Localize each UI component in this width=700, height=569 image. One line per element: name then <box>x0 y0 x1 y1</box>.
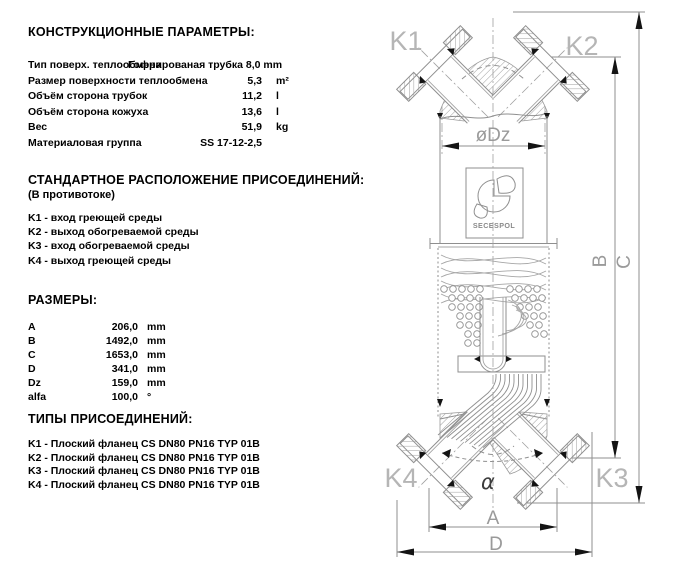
section-title-construction: КОНСТРУКЦИОННЫЕ ПАРАМЕТРЫ: <box>28 25 255 39</box>
dimension-label: B <box>28 335 36 347</box>
dimension-unit: ° <box>147 391 151 403</box>
connection-item: K1 - вход греющей среды <box>28 211 378 225</box>
connection-type-item: K4 - Плоский фланец CS DN80 PN16 TYP 01B <box>28 479 378 493</box>
spec-value: 5,3 <box>128 75 262 87</box>
spec-label: Вес <box>28 121 47 133</box>
dimension-value: 206,0 <box>58 321 138 333</box>
spec-row: Объём сторона кожуха 13,6 l <box>28 106 378 122</box>
label-b: B <box>590 255 611 268</box>
section-title-dimensions: РАЗМЕРЫ: <box>28 293 97 307</box>
dimension-unit: mm <box>147 377 166 389</box>
nameplate: SECESPOL <box>466 168 523 238</box>
shell <box>430 116 557 419</box>
connection-type-item: K2 - Плоский фланец CS DN80 PN16 TYP 01B <box>28 452 378 466</box>
dimension-label: alfa <box>28 391 46 403</box>
spec-unit: l <box>276 90 279 102</box>
connection-type-item: K1 - Плоский фланец CS DN80 PN16 TYP 01B <box>28 438 378 452</box>
spec-row: Вес 51,9 kg <box>28 121 378 137</box>
datasheet-page: SECESPOL K1 K2 K3 K4 øDz A D B C α КОНСТ… <box>0 0 700 569</box>
label-k2: K2 <box>565 31 598 61</box>
dimension-label: A <box>28 321 36 333</box>
dimension-unit: mm <box>147 363 166 375</box>
spec-value: 11,2 <box>128 90 262 102</box>
section-title-connections-layout: СТАНДАРТНОЕ РАСПОЛОЖЕНИЕ ПРИСОЕДИНЕНИЙ: <box>28 173 364 187</box>
spec-row: Размер поверхности теплообмена 5,3 m² <box>28 75 378 91</box>
label-k4: K4 <box>384 463 417 493</box>
dimension-label: Dz <box>28 377 41 389</box>
dimension-unit: mm <box>147 349 166 361</box>
spec-row: Объём сторона трубок 11,2 l <box>28 90 378 106</box>
spec-value: SS 17-12-2,5 <box>128 137 262 149</box>
logo-text: SECESPOL <box>473 221 516 230</box>
construction-table: Тип поверх. теплообмена Гофрированая тру… <box>28 59 378 152</box>
secespol-logo-icon <box>474 176 515 218</box>
label-dz: øDz <box>476 125 511 146</box>
dimension-value: 341,0 <box>58 363 138 375</box>
spec-value: Гофрированая трубка 8,0 mm <box>128 59 262 71</box>
spec-row: Материаловая группа SS 17-12-2,5 <box>28 137 378 153</box>
label-alpha: α <box>481 470 495 494</box>
dimension-row: Dz 159,0 mm <box>28 377 378 391</box>
dimension-value: 1492,0 <box>58 335 138 347</box>
dimension-label: C <box>28 349 36 361</box>
coil-bundle <box>441 255 548 346</box>
connection-item: K2 - выход обогреваемой среды <box>28 225 378 239</box>
label-d: D <box>489 534 503 555</box>
connection-types-list: K1 - Плоский фланец CS DN80 PN16 TYP 01B… <box>28 438 378 492</box>
dimension-unit: mm <box>147 321 166 333</box>
connection-item: K4 - выход греющей среды <box>28 254 378 268</box>
section-title-connection-types: ТИПЫ ПРИСОЕДИНЕНИЙ: <box>28 412 193 426</box>
connection-item: K3 - вход обогреваемой среды <box>28 239 378 253</box>
connections-layout-subtitle: (В противотоке) <box>28 189 115 201</box>
label-a: A <box>487 508 500 529</box>
spec-value: 51,9 <box>128 121 262 133</box>
dimension-label: D <box>28 363 36 375</box>
dimension-row: alfa 100,0 ° <box>28 391 378 405</box>
dimension-unit: mm <box>147 335 166 347</box>
label-k3: K3 <box>595 463 628 493</box>
label-k1: K1 <box>389 26 422 56</box>
dimension-row: A 206,0 mm <box>28 321 378 335</box>
spec-unit: m² <box>276 75 289 87</box>
spec-unit: l <box>276 106 279 118</box>
spec-value: 13,6 <box>128 106 262 118</box>
dimensions-table: A 206,0 mm B 1492,0 mm C 1653,0 mm D 341… <box>28 321 378 405</box>
connections-list: K1 - вход греющей средыK2 - выход обогре… <box>28 211 378 268</box>
dimension-row: B 1492,0 mm <box>28 335 378 349</box>
label-c: C <box>614 255 635 269</box>
dimension-value: 159,0 <box>58 377 138 389</box>
dimension-row: C 1653,0 mm <box>28 349 378 363</box>
dimension-value: 100,0 <box>58 391 138 403</box>
spec-unit: kg <box>276 121 288 133</box>
connection-type-item: K3 - Плоский фланец CS DN80 PN16 TYP 01B <box>28 465 378 479</box>
dimension-value: 1653,0 <box>58 349 138 361</box>
dimension-row: D 341,0 mm <box>28 363 378 377</box>
spec-label: Материаловая группа <box>28 137 142 149</box>
spec-row: Тип поверх. теплообмена Гофрированая тру… <box>28 59 378 75</box>
